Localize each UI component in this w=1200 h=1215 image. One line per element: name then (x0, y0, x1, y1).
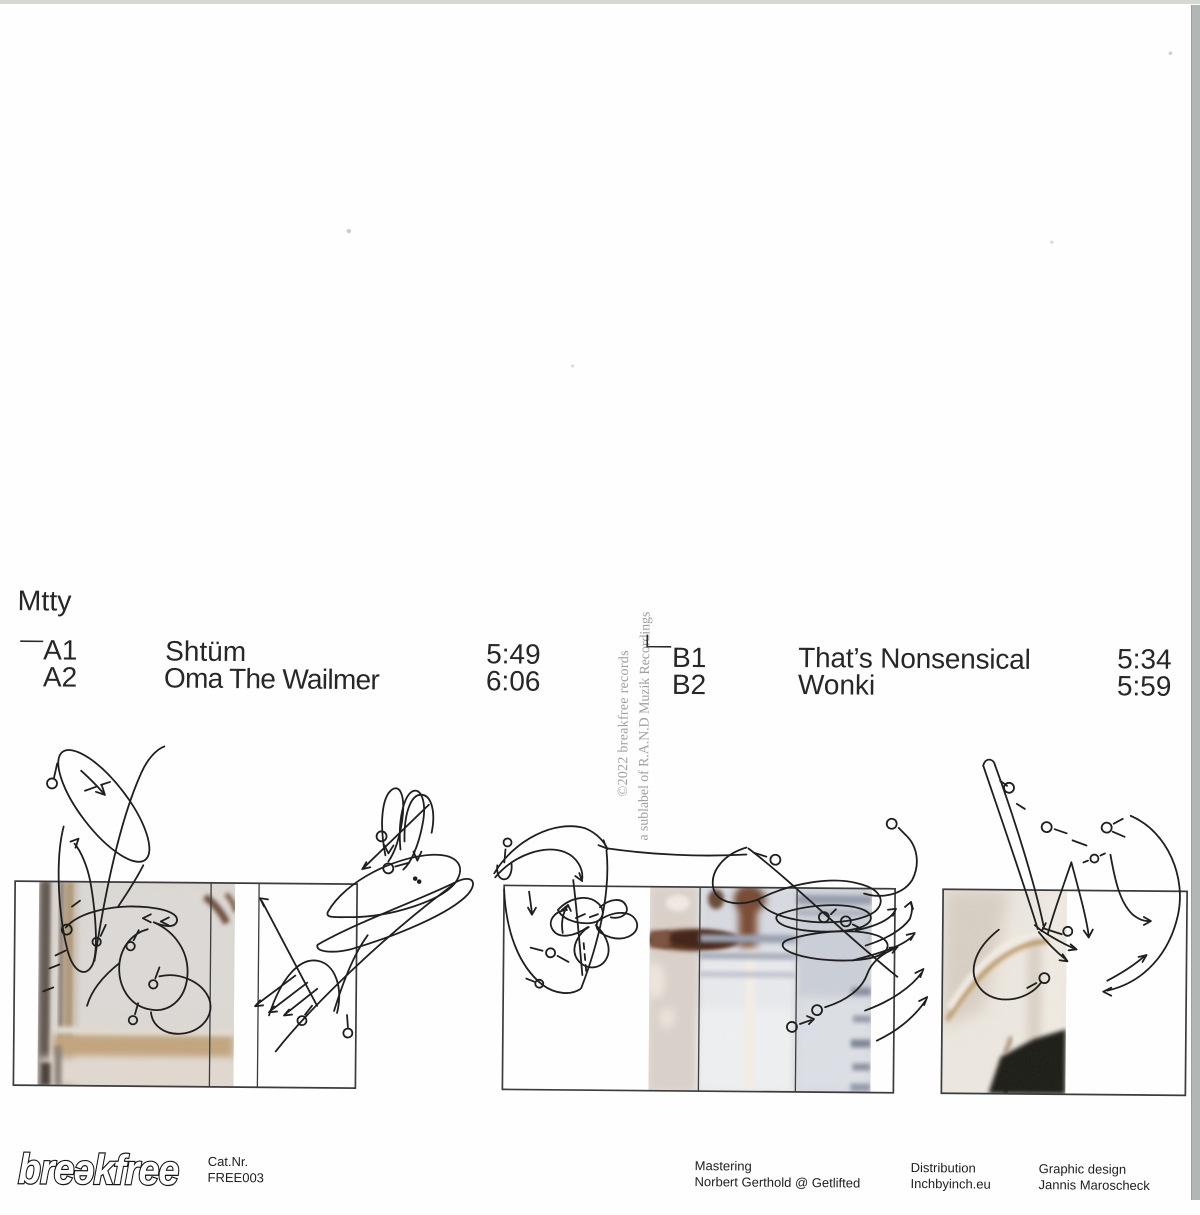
svg-text:Oma The Wailmer: Oma The Wailmer (164, 662, 380, 695)
svg-text:breəkfree: breəkfree (18, 1146, 179, 1194)
svg-text:Inchbyinch.eu: Inchbyinch.eu (910, 1176, 990, 1192)
svg-text:©2022 breakfree records: ©2022 breakfree records (616, 650, 632, 796)
svg-text:Jannis Maroscheck: Jannis Maroscheck (1038, 1177, 1150, 1193)
svg-text:Norbert Gerthold @ Getlifted: Norbert Gerthold @ Getlifted (695, 1174, 861, 1190)
svg-text:Wonki: Wonki (798, 669, 876, 701)
svg-text:FREE003: FREE003 (208, 1170, 265, 1185)
svg-text:Cat.Nr.: Cat.Nr. (208, 1154, 249, 1169)
svg-text:Distribution: Distribution (911, 1160, 976, 1176)
svg-text:Graphic design: Graphic design (1039, 1161, 1127, 1177)
svg-text:B2: B2 (672, 669, 707, 700)
svg-text:6:06: 6:06 (486, 665, 541, 696)
svg-text:5:59: 5:59 (1117, 670, 1172, 701)
svg-text:A2: A2 (43, 661, 78, 692)
svg-text:Mastering: Mastering (695, 1158, 752, 1173)
svg-text:Mtty: Mtty (17, 585, 72, 617)
